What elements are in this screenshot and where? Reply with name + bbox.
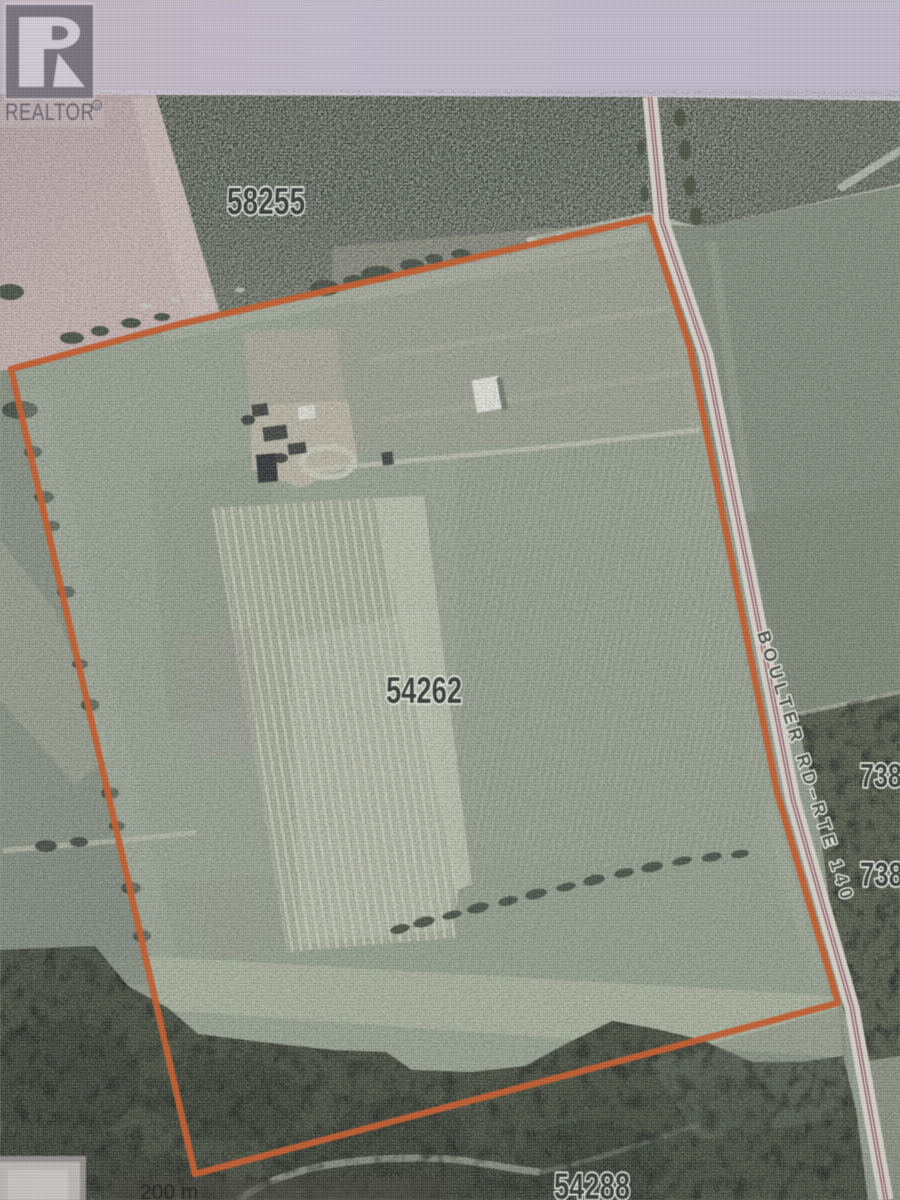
svg-text:738: 738 bbox=[860, 758, 900, 795]
svg-text:REALTOR: REALTOR bbox=[5, 99, 94, 126]
svg-text:58255: 58255 bbox=[227, 181, 305, 223]
svg-text:738: 738 bbox=[860, 857, 900, 894]
svg-text:54262: 54262 bbox=[386, 670, 462, 711]
svg-text:R: R bbox=[95, 101, 101, 110]
svg-text:54288: 54288 bbox=[554, 1166, 630, 1200]
svg-text:200 m: 200 m bbox=[140, 1181, 198, 1200]
